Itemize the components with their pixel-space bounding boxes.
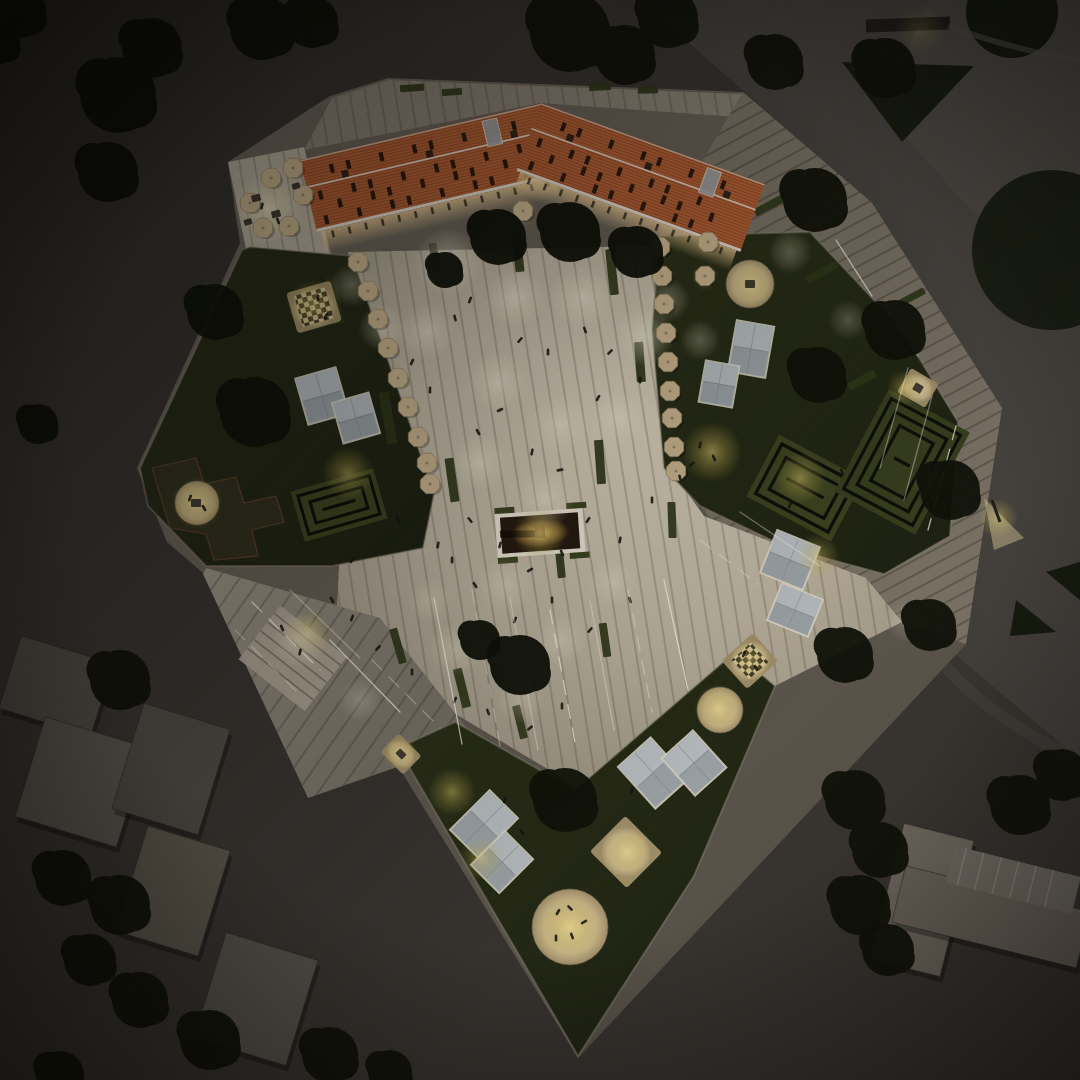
aerial-night-render: Aerial night rendering of an urban plaza… xyxy=(0,0,1080,1080)
vignette xyxy=(0,0,1080,1080)
rendering-canvas: Aerial night rendering of an urban plaza… xyxy=(0,0,1080,1080)
